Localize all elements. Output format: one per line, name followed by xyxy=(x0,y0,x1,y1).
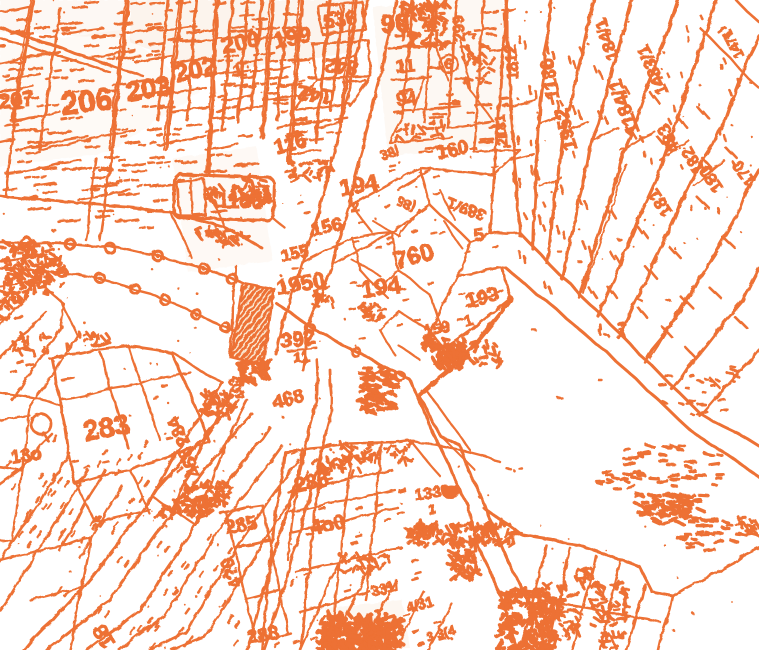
svg-text:90: 90 xyxy=(380,7,411,39)
svg-text:536: 536 xyxy=(322,7,358,33)
svg-text:1166: 1166 xyxy=(217,189,263,214)
svg-text:299: 299 xyxy=(450,14,469,42)
svg-text:1812: 1812 xyxy=(502,44,522,81)
svg-text:2181: 2181 xyxy=(492,114,511,147)
svg-text:194: 194 xyxy=(359,271,403,303)
svg-text:130: 130 xyxy=(406,522,433,542)
svg-text:142: 142 xyxy=(296,81,334,109)
svg-text:6: 6 xyxy=(444,56,454,74)
svg-text:206: 206 xyxy=(59,81,115,122)
svg-text:11: 11 xyxy=(395,55,416,77)
